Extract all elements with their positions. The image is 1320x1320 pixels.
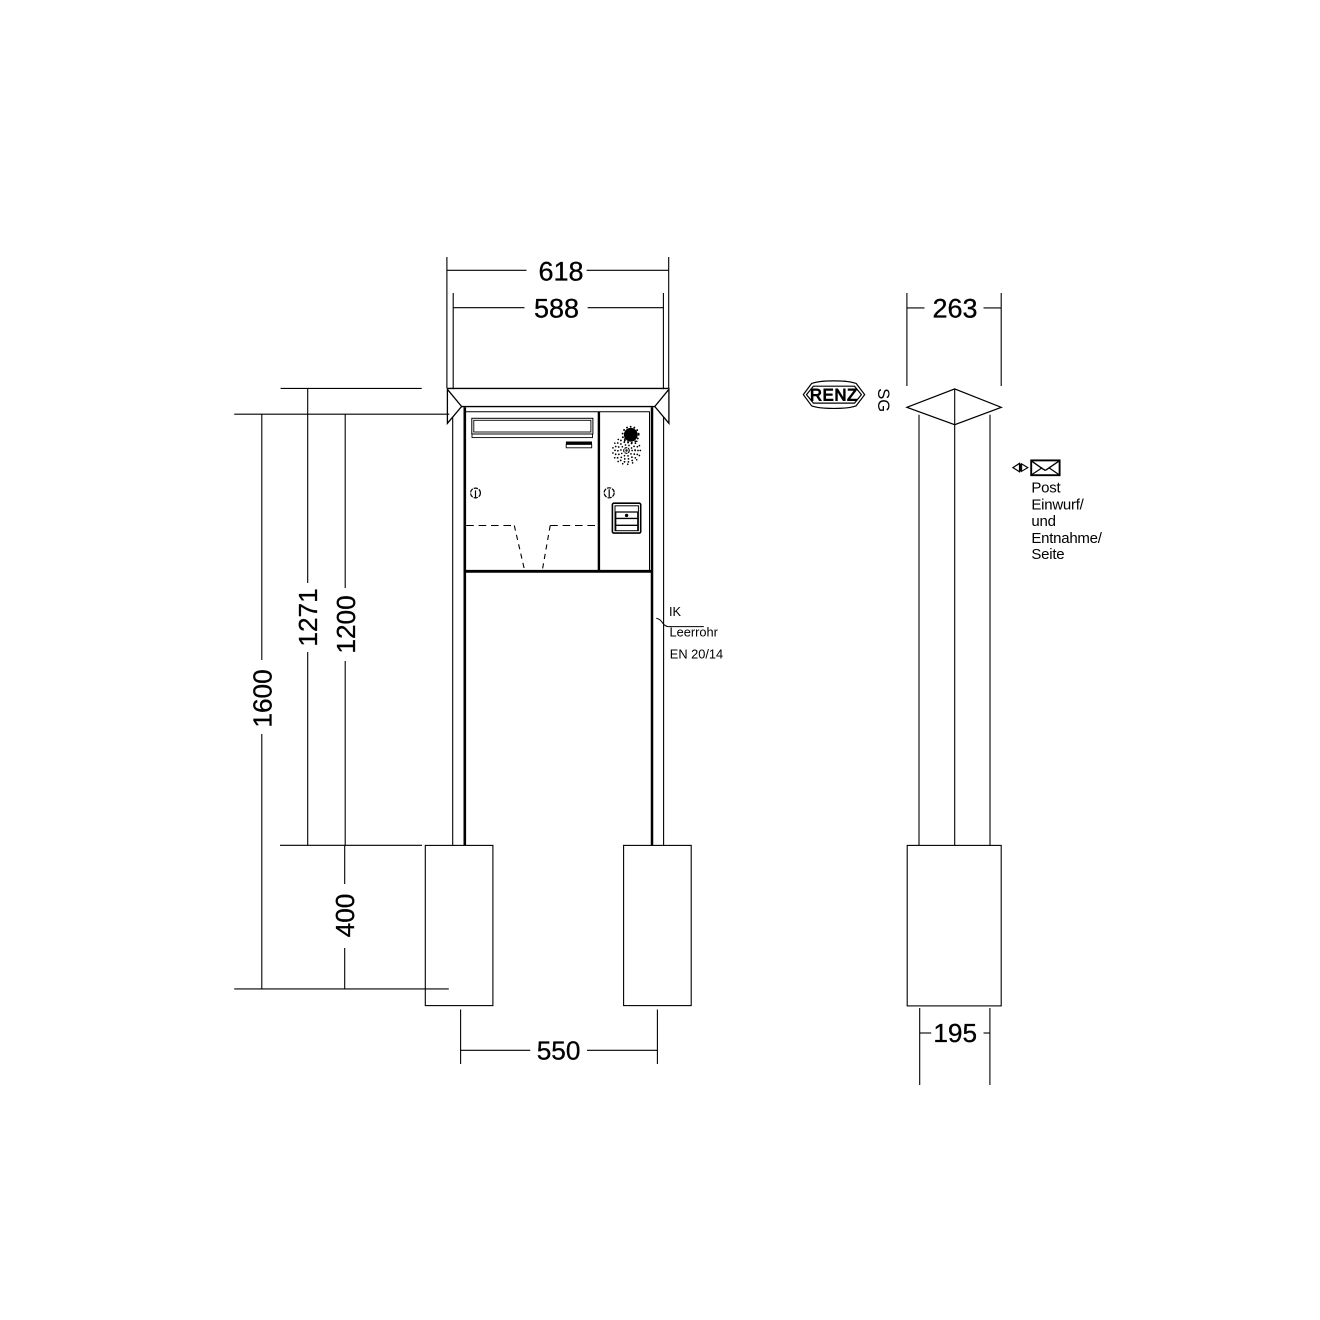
- svg-text:Entnahme/: Entnahme/: [1031, 530, 1102, 547]
- svg-text:Post: Post: [1031, 480, 1061, 497]
- svg-text:und: und: [1031, 513, 1055, 530]
- svg-text:618: 618: [538, 256, 583, 286]
- svg-text:IK: IK: [669, 604, 682, 619]
- svg-text:1271: 1271: [293, 588, 323, 646]
- svg-text:RENZ: RENZ: [810, 386, 858, 404]
- svg-text:1200: 1200: [331, 595, 361, 653]
- svg-text:550: 550: [537, 1036, 581, 1066]
- svg-text:Einwurf/: Einwurf/: [1031, 497, 1084, 514]
- svg-text:Leerrohr: Leerrohr: [670, 625, 719, 640]
- svg-text:400: 400: [330, 894, 360, 938]
- svg-text:263: 263: [932, 293, 977, 323]
- svg-text:SG: SG: [874, 388, 892, 412]
- svg-text:EN 20/14: EN 20/14: [670, 647, 723, 662]
- svg-text:195: 195: [933, 1018, 977, 1048]
- svg-text:588: 588: [534, 294, 579, 324]
- svg-text:1600: 1600: [247, 669, 277, 727]
- svg-text:Seite: Seite: [1031, 546, 1064, 563]
